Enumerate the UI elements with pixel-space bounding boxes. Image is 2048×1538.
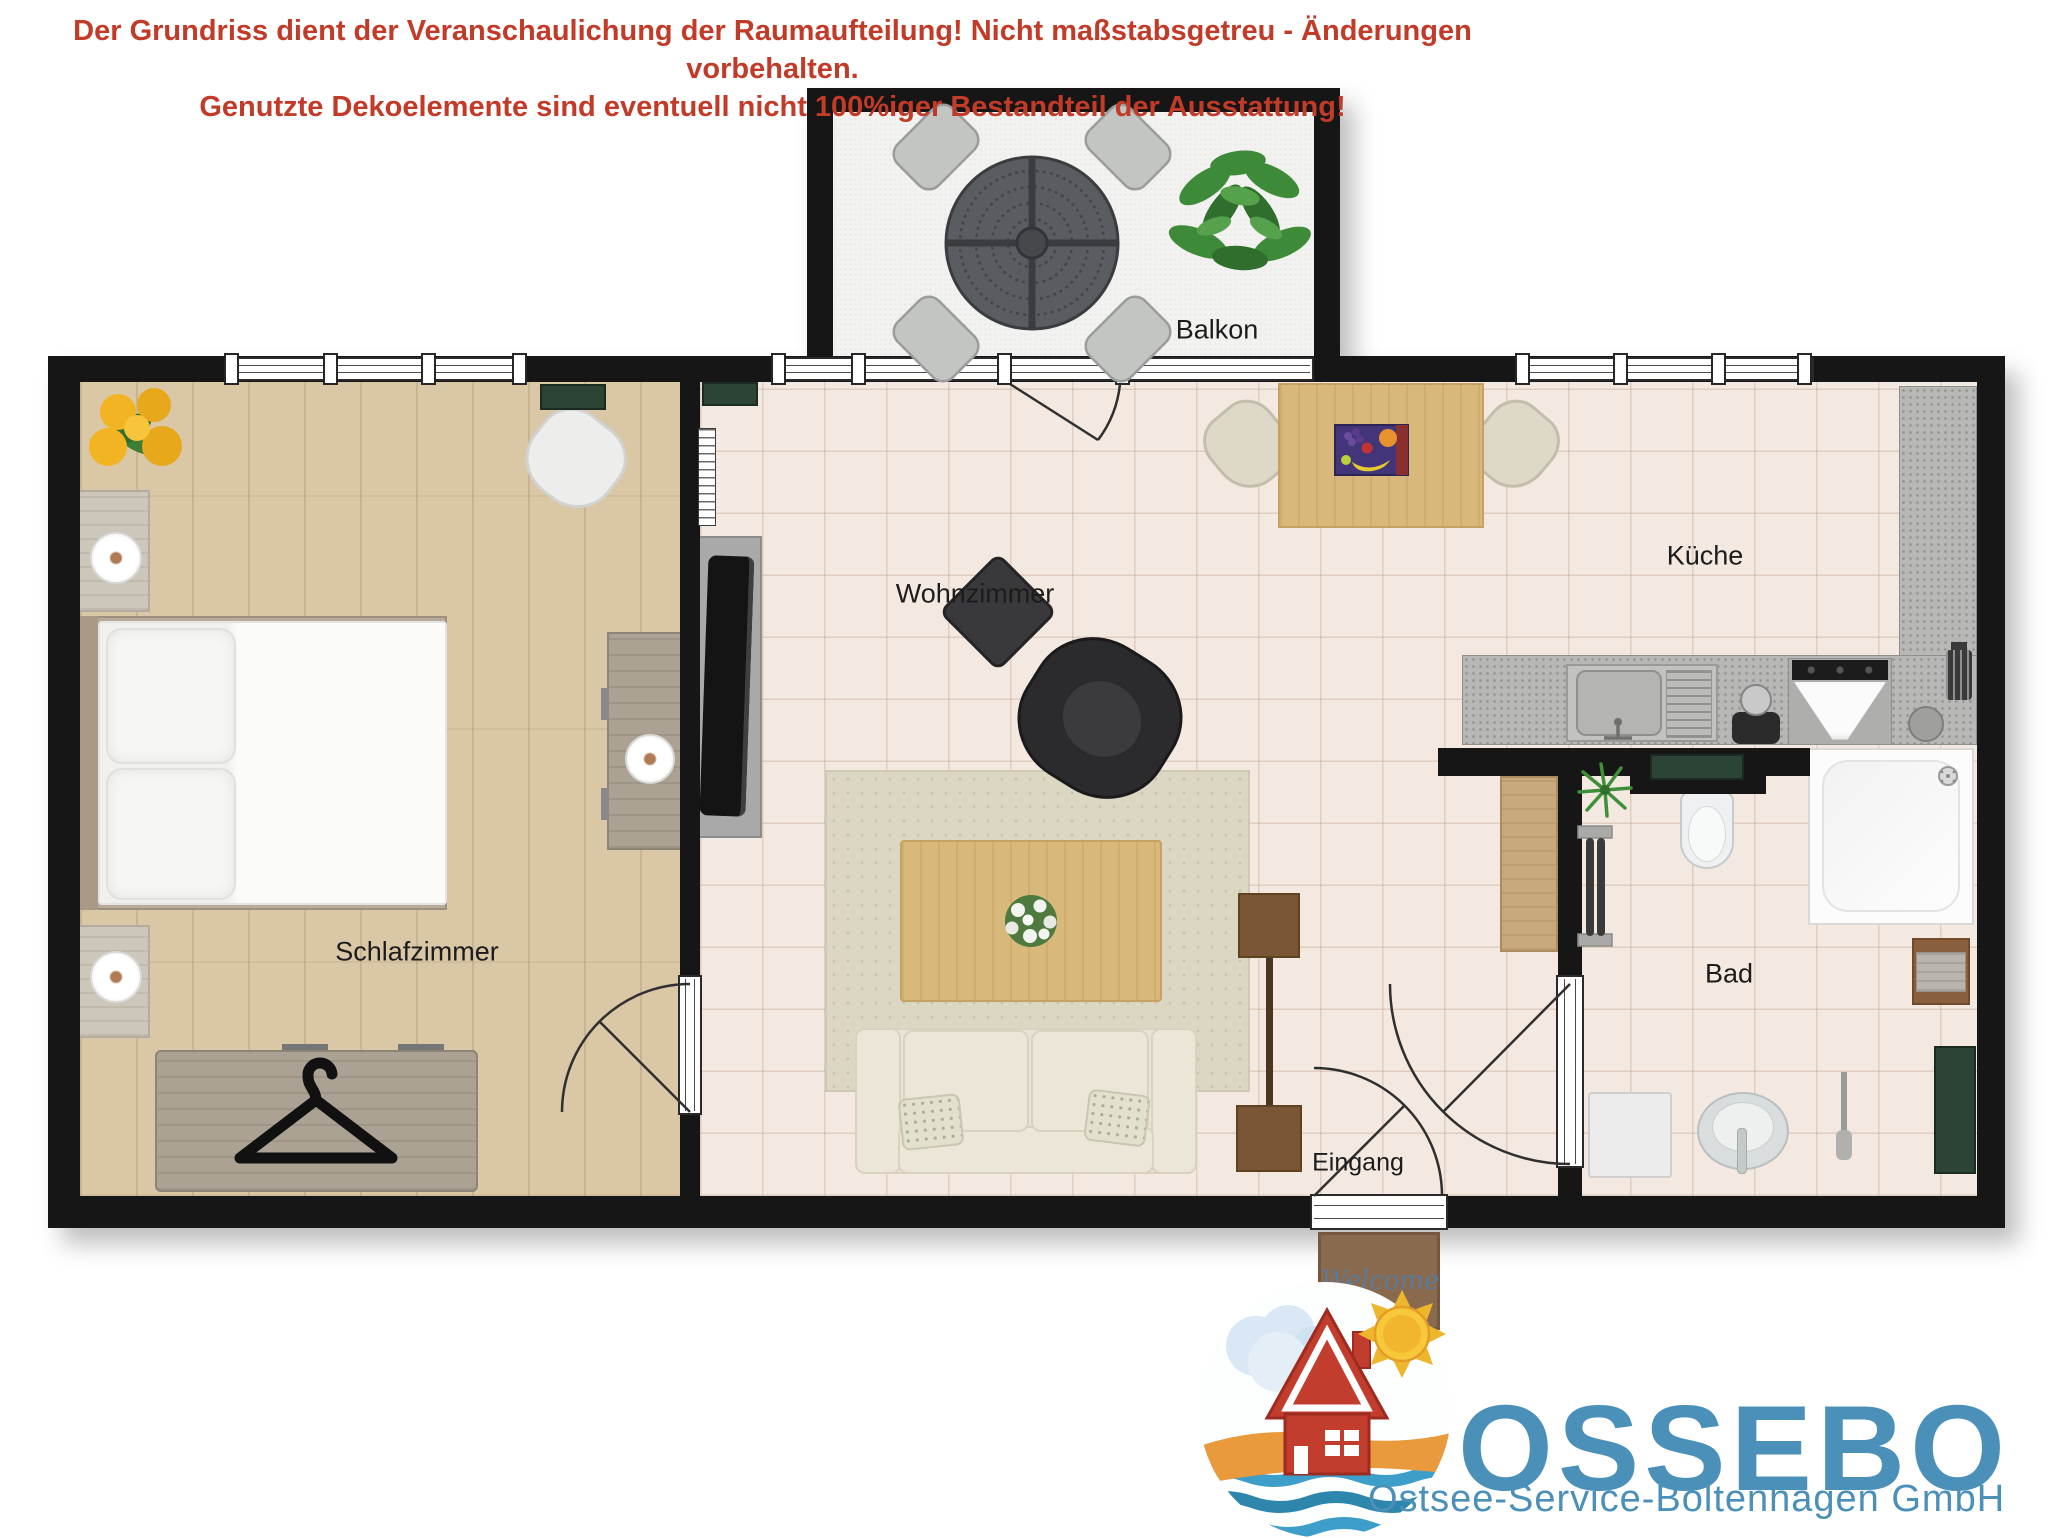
- sofa-armrest-left: [855, 1028, 901, 1174]
- window-mullion: [851, 353, 866, 385]
- kitchen-sink: [1576, 670, 1662, 736]
- bathroom-door-frame: [1556, 975, 1584, 1168]
- room-label-balkon: Balkon: [1176, 315, 1259, 346]
- nightstand-lamp-bottom: [90, 951, 142, 1003]
- bed-headboard: [80, 616, 98, 910]
- room-label-wohnzimmer: Wohnzimmer: [896, 579, 1055, 610]
- washing-machine: [1588, 1092, 1672, 1178]
- disclaimer-line-2: Genutzte Dekoelemente sind eventuell nic…: [0, 88, 1545, 126]
- room-label-kueche: Küche: [1667, 541, 1744, 572]
- balcony-door-jamb: [1115, 353, 1130, 385]
- radiator: [702, 382, 758, 406]
- bedroom-door-frame: [678, 975, 702, 1115]
- window-mullion: [512, 353, 527, 385]
- wall: [1558, 1168, 1582, 1196]
- tv: [699, 555, 754, 816]
- french-press: [1946, 650, 1972, 700]
- sofa-pillow: [1083, 1088, 1151, 1147]
- sink-drainer: [1666, 670, 1712, 738]
- wall: [48, 356, 80, 1228]
- window-mullion: [224, 353, 239, 385]
- coffee-table: [900, 840, 1162, 1002]
- balcony-wall: [807, 88, 833, 358]
- window-mullion: [771, 353, 786, 385]
- window-mullion: [421, 353, 436, 385]
- bath-cabinet: [1934, 1046, 1976, 1174]
- balcony-wall: [1314, 88, 1340, 358]
- shower: [1822, 760, 1960, 912]
- wall-vent: [698, 428, 716, 526]
- desk-lamp: [625, 734, 675, 784]
- nightstand-lamp-top: [90, 532, 142, 584]
- window-mullion: [323, 353, 338, 385]
- sofa-pillow: [897, 1093, 964, 1151]
- window-mullion: [1797, 353, 1812, 385]
- kitchen-bowl: [1908, 706, 1944, 742]
- toilet-seat: [1688, 806, 1726, 862]
- desk-handle: [601, 788, 609, 820]
- bedroom-window: [231, 357, 527, 381]
- sofa-armrest-right: [1151, 1028, 1197, 1174]
- sink-handle: [1737, 1128, 1747, 1174]
- floor-plan-page: { "disclaimer": { "line1": "Der Grundris…: [0, 0, 2048, 1538]
- room-label-bad: Bad: [1705, 959, 1753, 990]
- balcony-door-jamb: [997, 353, 1012, 385]
- desk-handle: [601, 688, 609, 720]
- radiator: [540, 384, 606, 410]
- floor-lamp-shade: [1238, 893, 1300, 958]
- wall: [680, 1115, 700, 1196]
- entrance-door-frame: [1310, 1194, 1448, 1230]
- dining-table: [1278, 383, 1484, 528]
- toilet-brush: [1836, 1130, 1852, 1160]
- kettle: [1740, 684, 1772, 716]
- room-label-schlafzimmer: Schlafzimmer: [335, 937, 499, 968]
- window-mullion: [1515, 353, 1530, 385]
- kitchen-window: [1522, 357, 1814, 381]
- towels: [1916, 952, 1966, 992]
- wardrobe: [155, 1050, 478, 1192]
- wall: [1558, 748, 1582, 975]
- wall: [680, 382, 700, 975]
- logo-subtitle-text: Ostsee-Service-Boltenhagen GmbH: [1368, 1478, 2005, 1521]
- bed-pillow-1: [106, 628, 236, 764]
- floor-lamp-base: [1236, 1105, 1302, 1172]
- window-mullion: [1711, 353, 1726, 385]
- kettle-base: [1732, 712, 1780, 744]
- bed-pillow-2: [106, 768, 236, 900]
- wall: [48, 1196, 2005, 1228]
- house-icon: [1267, 1310, 1387, 1474]
- welcome-doormat: Welcome: [1318, 1232, 1440, 1330]
- wall: [1977, 356, 2005, 1228]
- floor-lamp-pole: [1266, 958, 1273, 1105]
- hall-cabinet: [1500, 776, 1558, 952]
- window-mullion: [1613, 353, 1628, 385]
- room-label-eingang: Eingang: [1312, 1149, 1404, 1178]
- disclaimer: Der Grundriss dient der Veranschaulichun…: [0, 12, 1545, 126]
- cooktop: [1792, 660, 1888, 680]
- kitchen-counter: [1462, 655, 1977, 745]
- disclaimer-line-1: Der Grundriss dient der Veranschaulichun…: [0, 12, 1545, 88]
- bath-wall-shelf: [1650, 754, 1744, 780]
- kitchen-counter-right: [1899, 386, 1977, 657]
- toilet-brush-handle: [1841, 1072, 1847, 1134]
